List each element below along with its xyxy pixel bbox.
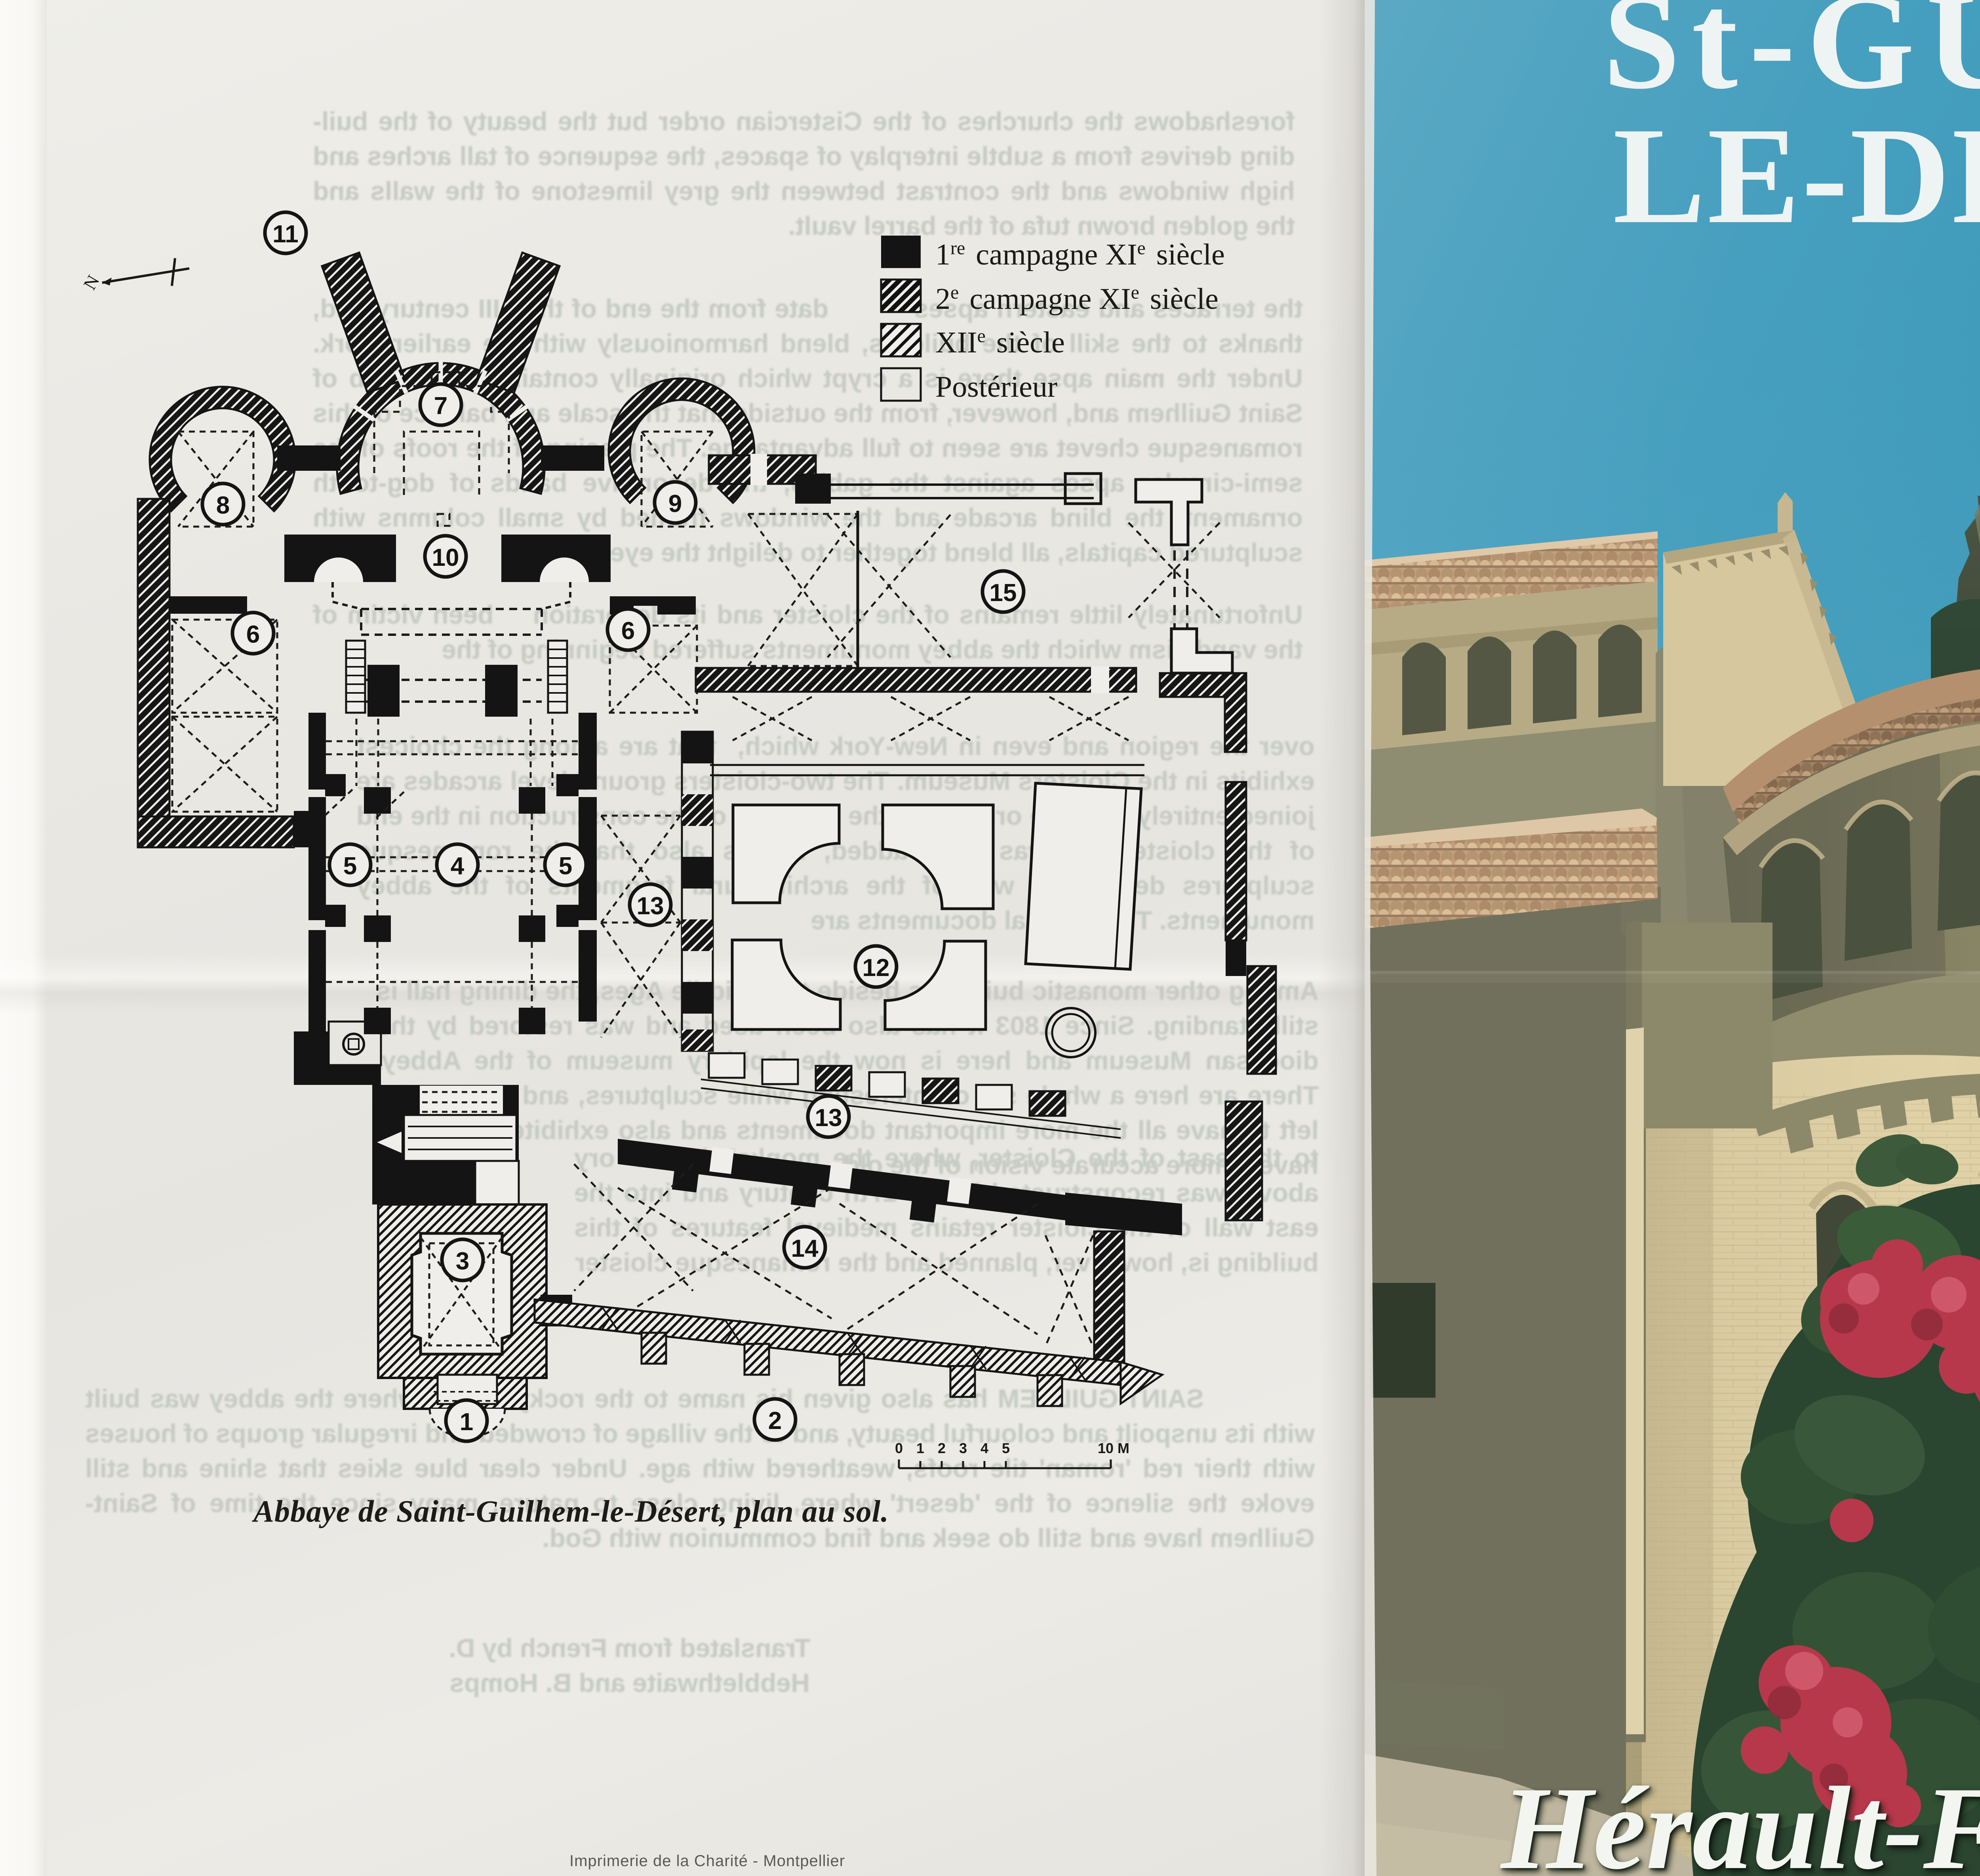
svg-text:11: 11 [272, 221, 299, 248]
svg-text:8: 8 [216, 492, 230, 519]
svg-text:6: 6 [246, 621, 260, 648]
svg-text:4: 4 [451, 852, 465, 880]
svg-text:15: 15 [990, 579, 1017, 607]
svg-text:2: 2 [768, 1407, 782, 1435]
svg-text:9: 9 [668, 490, 682, 518]
svg-text:10: 10 [432, 544, 459, 571]
svg-text:13: 13 [815, 1104, 842, 1132]
svg-text:5: 5 [343, 852, 357, 880]
svg-text:5: 5 [559, 852, 572, 880]
svg-text:1: 1 [460, 1408, 473, 1436]
svg-text:14: 14 [791, 1235, 819, 1262]
svg-text:12: 12 [862, 954, 890, 982]
svg-text:7: 7 [434, 392, 447, 420]
svg-text:3: 3 [456, 1248, 469, 1275]
svg-text:6: 6 [621, 617, 635, 645]
svg-text:13: 13 [637, 892, 664, 920]
